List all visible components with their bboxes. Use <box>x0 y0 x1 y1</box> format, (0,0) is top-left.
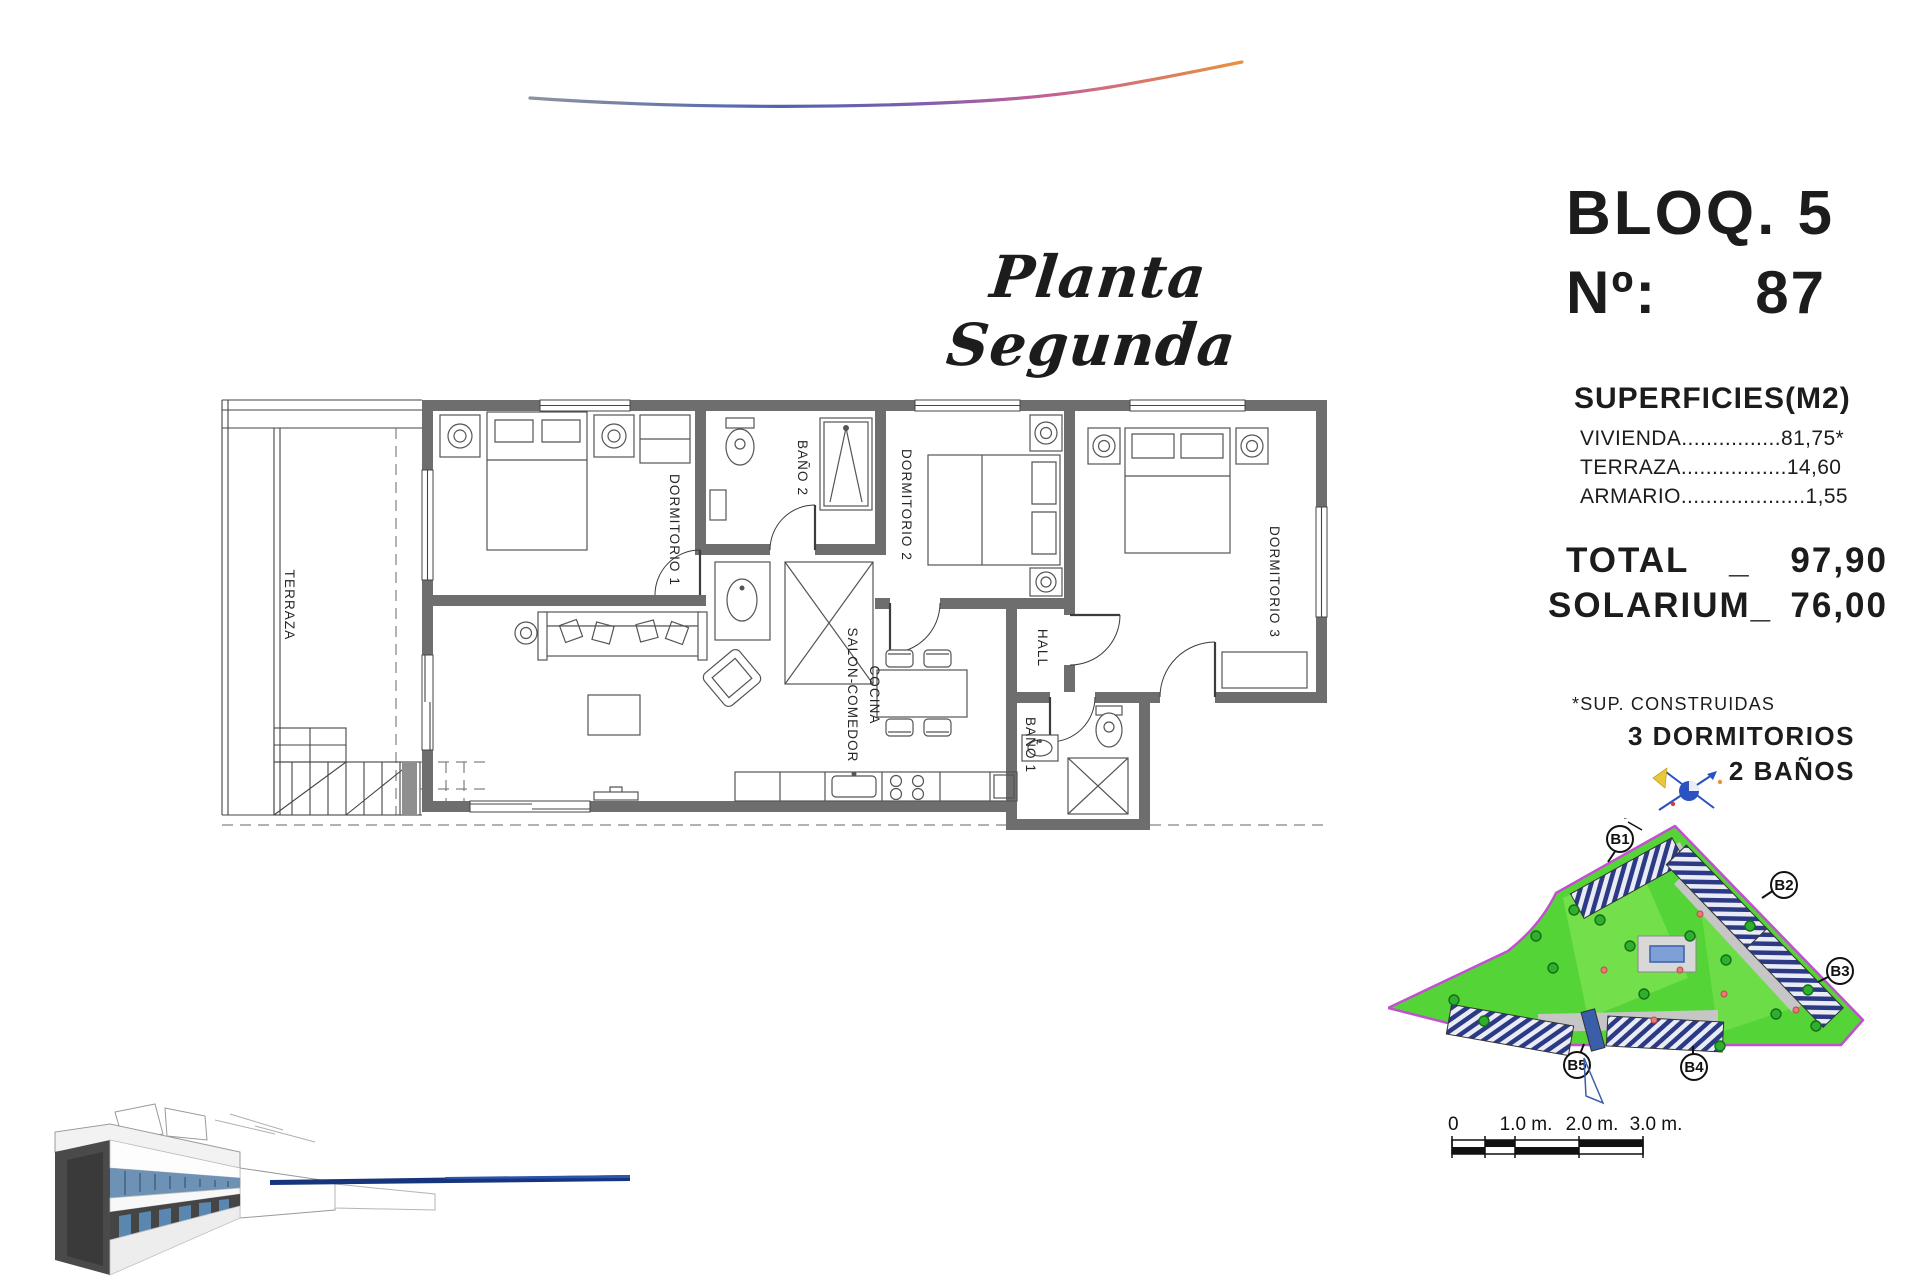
room-label-bath2: BAÑO 2 <box>795 440 810 496</box>
building-render <box>15 1090 635 1280</box>
site-label-b4: B4 <box>1684 1059 1704 1076</box>
bedrooms-count: 3 DORMITORIOS <box>1560 721 1855 752</box>
room-label-bath1: BAÑO 1 <box>1023 717 1038 773</box>
site-label-b2: B2 <box>1774 877 1793 894</box>
surfaces-title: SUPERFICIES(M2) <box>1574 382 1851 416</box>
room-label-salon-1: SALON-COMEDOR <box>845 627 860 762</box>
room-label-terraza: TERRAZA <box>282 570 297 641</box>
scale-3m: 3.0 m. <box>1630 1114 1683 1135</box>
unit-number-label: Nº: <box>1566 258 1657 327</box>
surface-row-terraza: TERRAZA.................14,60 <box>1580 453 1848 482</box>
room-label-dorm1: DORMITORIO 1 <box>667 474 682 586</box>
plan-sheet: Planta Segunda TERRAZA <box>0 0 1920 1280</box>
bath2-fixtures <box>710 418 872 520</box>
unit-number-value: 87 <box>1755 258 1826 327</box>
room-label-dorm2: DORMITORIO 2 <box>899 449 914 561</box>
scale-1m: 1.0 m. <box>1500 1114 1553 1135</box>
block-number: BLOQ. 5 <box>1566 178 1835 249</box>
site-plan: B1 B2 B3 B4 B5 <box>1388 818 1900 1118</box>
room-label-hall: HALL <box>1035 629 1050 667</box>
solarium-row: SOLARIUM_76,00 <box>1548 586 1888 626</box>
scale-bar: 0 1.0 m. 2.0 m. 3.0 m. <box>1448 1112 1768 1172</box>
room-label-salon-2: COCINA <box>867 665 882 724</box>
total-row: TOTAL_97,90 <box>1566 541 1888 581</box>
surfaces-table: VIVIENDA................81,75* TERRAZA..… <box>1580 424 1848 511</box>
gradient-swoosh-decoration <box>440 35 1260 115</box>
floor-plan: TERRAZA <box>170 300 1330 860</box>
unit-number-row: Nº: 87 <box>1566 258 1826 327</box>
scale-2m: 2.0 m. <box>1566 1114 1619 1135</box>
surface-row-armario: ARMARIO....................1,55 <box>1580 482 1848 511</box>
dorm1-furniture <box>440 412 690 550</box>
compass-icon <box>1645 758 1731 822</box>
dorm2-furniture <box>928 415 1062 596</box>
site-label-b1: B1 <box>1610 831 1629 848</box>
scale-0: 0 <box>1448 1114 1459 1135</box>
room-label-dorm3: DORMITORIO 3 <box>1267 526 1282 638</box>
surface-row-vivienda: VIVIENDA................81,75* <box>1580 424 1848 453</box>
site-label-b3: B3 <box>1830 963 1849 980</box>
built-surfaces-footnote: *SUP. CONSTRUIDAS <box>1572 694 1775 715</box>
